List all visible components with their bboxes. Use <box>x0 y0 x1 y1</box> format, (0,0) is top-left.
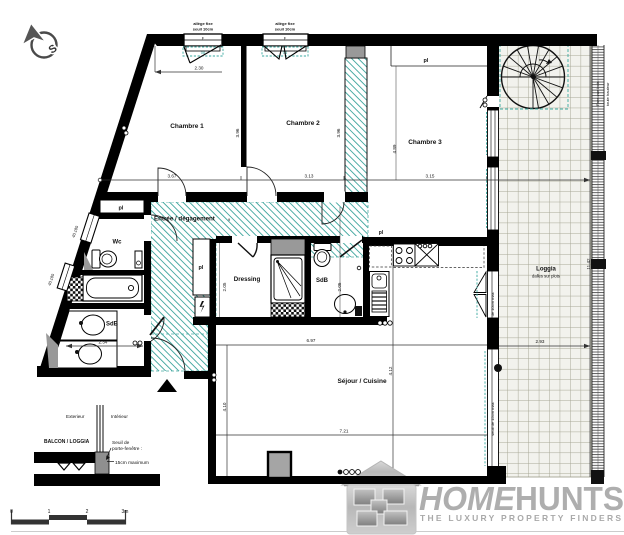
svg-text:THE LUXURY PROPERTY FINDERS: THE LUXURY PROPERTY FINDERS <box>420 513 621 523</box>
svg-text:3m: 3m <box>122 509 129 515</box>
svg-text:3.96: 3.96 <box>336 128 341 137</box>
svg-text:pl: pl <box>379 230 384 236</box>
svg-text:seuil 10cm: seuil 10cm <box>275 27 296 32</box>
svg-text:3.67: 3.67 <box>168 174 177 179</box>
svg-text:4.10: 4.10 <box>222 402 227 411</box>
svg-text:3.15: 3.15 <box>426 174 435 179</box>
svg-text:pl: pl <box>199 265 204 271</box>
svg-text:SdB: SdB <box>316 278 329 284</box>
svg-text:2.34: 2.34 <box>99 340 108 345</box>
svg-text:2: 2 <box>86 509 89 515</box>
svg-text:2.93: 2.93 <box>536 339 545 344</box>
svg-text:Seuil de: Seuil de <box>112 440 130 446</box>
svg-text:Pare-vue bois: Pare-vue bois <box>595 81 600 106</box>
svg-text:0: 0 <box>10 509 13 515</box>
svg-text:pl: pl <box>424 58 429 64</box>
svg-text:HUNTS: HUNTS <box>515 480 624 517</box>
svg-text:HOME: HOME <box>419 480 516 517</box>
svg-text:Dressing: Dressing <box>234 276 261 283</box>
svg-text:15cm maximum: 15cm maximum <box>115 460 149 466</box>
svg-text:2.30: 2.30 <box>195 66 204 71</box>
svg-text:4.89: 4.89 <box>392 144 397 153</box>
svg-text:toute hauteur: toute hauteur <box>605 82 610 106</box>
svg-text:allège fixe: allège fixe <box>275 21 295 26</box>
svg-text:2.05: 2.05 <box>337 282 342 291</box>
svg-text:dalles sur plots: dalles sur plots <box>532 274 560 279</box>
svg-text:11.42: 11.42 <box>586 258 591 270</box>
svg-text:Chambre 2: Chambre 2 <box>286 120 320 127</box>
svg-text:seuil 10cm: seuil 10cm <box>193 27 214 32</box>
svg-text:BALCON / LOGGIA: BALCON / LOGGIA <box>44 439 90 445</box>
svg-text:1: 1 <box>48 509 51 515</box>
svg-text:3.96: 3.96 <box>235 128 240 137</box>
svg-text:Entrée / dégagement: Entrée / dégagement <box>154 216 215 223</box>
svg-text:4.12: 4.12 <box>388 366 393 375</box>
svg-text:2.05: 2.05 <box>222 282 227 291</box>
svg-text:Intérieur: Intérieur <box>111 414 128 419</box>
svg-text:Chambre 1: Chambre 1 <box>170 123 204 130</box>
svg-text:Loggia: Loggia <box>536 267 556 273</box>
svg-text:3.13: 3.13 <box>305 174 314 179</box>
svg-text:Exterieur: Exterieur <box>66 414 85 419</box>
svg-text:seuil de 15cm max: seuil de 15cm max <box>490 402 495 435</box>
svg-text:pl: pl <box>119 206 124 212</box>
svg-text:6.97: 6.97 <box>307 338 316 343</box>
svg-text:Séjour / Cuisine: Séjour / Cuisine <box>337 378 387 385</box>
svg-text:Chambre 3: Chambre 3 <box>408 139 442 146</box>
svg-text:SdB: SdB <box>106 322 119 328</box>
svg-text:porte-fenêtre :: porte-fenêtre : <box>112 446 142 452</box>
svg-text:allège fixe: allège fixe <box>193 21 213 26</box>
svg-text:Wc: Wc <box>113 240 123 246</box>
svg-text:7.21: 7.21 <box>340 429 349 434</box>
